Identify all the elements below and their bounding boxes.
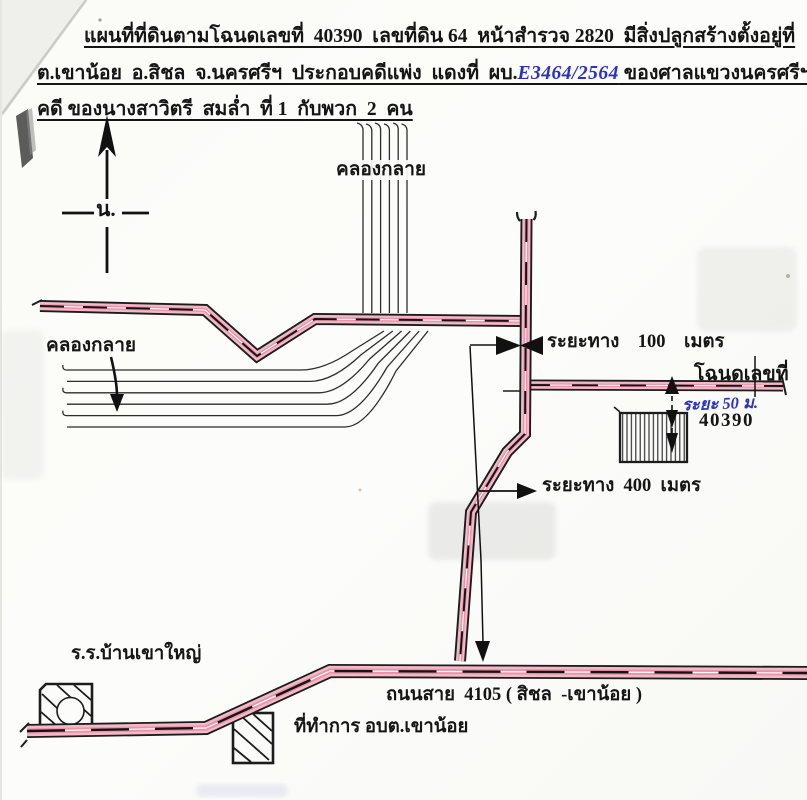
canal-upper-label: คลองกลาย [334, 160, 428, 180]
school-label: ร.ร.บ้านเขาใหญ่ [71, 645, 201, 664]
north-label: น. [96, 198, 116, 220]
scanned-survey-map: แผนที่ที่ดินตามโฉนดเลขที่ 40390 เลขที่ดิ… [0, 0, 807, 800]
title-line-2-text: ต.เขาน้อย อ.สิชล จ.นครศรีฯ ประกอบคดีแพ่ง… [37, 63, 517, 84]
distance-100m-label: ระยะทาง 100 เมตร [547, 333, 724, 352]
title-line-2-court: ของศาลแขวงนครศรีฯ [619, 63, 807, 84]
title-line-2: ต.เขาน้อย อ.สิชล จ.นครศรีฯ ประกอบคดีแพ่ง… [37, 57, 807, 88]
sao-office-label: ที่ทำการ อบต.เขาน้อย [294, 718, 468, 737]
north-arrow [62, 115, 149, 273]
road-4105-label: ถนนสาย 4105 ( สิชล -เขาน้อย ) [386, 686, 642, 705]
access-road [460, 211, 536, 661]
title-line-1: แผนที่ที่ดินตามโฉนดเลขที่ 40390 เลขที่ดิ… [84, 20, 795, 51]
distance-400m-label: ระยะทาง 400 เมตร [542, 477, 701, 496]
deed-number-label: 40390 [699, 411, 754, 431]
title-line-3: คดี ของนางสาวิตรี สมล่ำ ที่ 1 กับพวก 2 ค… [37, 93, 413, 124]
case-number-handwritten: E3464/2564 [517, 63, 618, 84]
canal-lower-label: คลองกลาย [46, 336, 136, 356]
school-building [40, 684, 92, 726]
deed-title-label: โฉนดเลขที่ [694, 365, 789, 385]
